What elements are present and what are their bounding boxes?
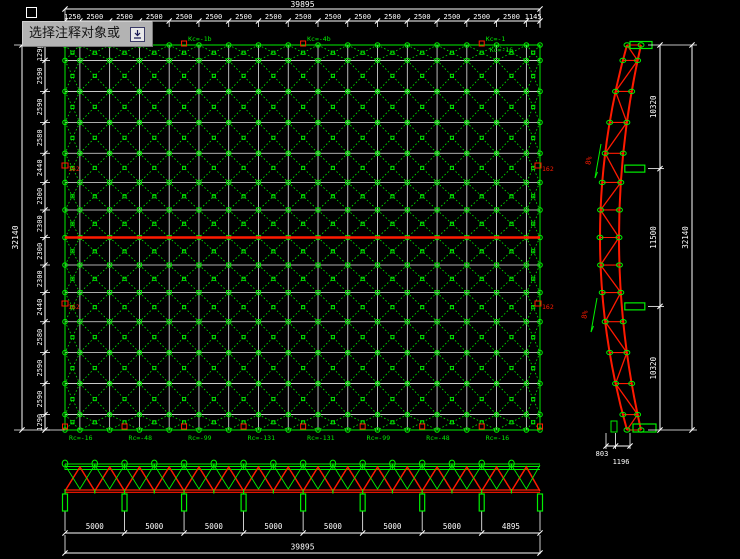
svg-text:2500: 2500: [116, 13, 133, 21]
bottom-dimension-chain: 5000500050005000500050005000489539895: [62, 522, 542, 556]
plan-view-space-frame: Rc=-16Rc=-48Rc=-99Rc=-131Rc=-131Rc=-99Rc…: [62, 35, 554, 442]
side-elevation-dimensions: 103201150010320321408031196: [596, 42, 697, 466]
svg-text:2500: 2500: [176, 13, 193, 21]
svg-text:Rc=-99: Rc=-99: [367, 434, 391, 442]
left-dimension-chain: 3214012902590259025802440230023002300230…: [11, 42, 65, 432]
svg-text:2300: 2300: [36, 243, 44, 260]
svg-text:162: 162: [68, 303, 80, 311]
svg-text:2590: 2590: [36, 98, 44, 115]
svg-text:162: 162: [542, 303, 554, 311]
svg-text:2300: 2300: [36, 188, 44, 205]
svg-text:2440: 2440: [36, 299, 44, 316]
svg-text:10320: 10320: [649, 95, 658, 118]
svg-text:Kc=-16: Kc=-16: [490, 46, 514, 54]
svg-text:2500: 2500: [384, 13, 401, 21]
svg-text:Rc=-131: Rc=-131: [307, 434, 334, 442]
pickbox-cursor: [26, 7, 37, 18]
svg-text:2580: 2580: [36, 129, 44, 146]
svg-text:2590: 2590: [36, 67, 44, 84]
svg-text:2500: 2500: [265, 13, 282, 21]
svg-text:32140: 32140: [11, 225, 20, 249]
svg-text:2590: 2590: [36, 391, 44, 408]
svg-text:2580: 2580: [36, 329, 44, 346]
svg-text:5000: 5000: [383, 522, 402, 531]
svg-text:Kc=-1b: Kc=-1b: [188, 35, 212, 43]
svg-text:2500: 2500: [86, 13, 103, 21]
svg-text:803: 803: [596, 450, 609, 458]
svg-text:39895: 39895: [290, 543, 314, 552]
svg-text:5000: 5000: [145, 522, 164, 531]
svg-text:2500: 2500: [414, 13, 431, 21]
svg-text:32140: 32140: [681, 226, 690, 249]
svg-text:Rc=-48: Rc=-48: [426, 434, 450, 442]
svg-text:2500: 2500: [205, 13, 222, 21]
svg-text:4895: 4895: [502, 522, 520, 531]
svg-text:Kc=-4b: Kc=-4b: [307, 35, 331, 43]
svg-text:Rc=-16: Rc=-16: [486, 434, 510, 442]
svg-text:2500: 2500: [295, 13, 312, 21]
svg-text:5000: 5000: [324, 522, 343, 531]
tab-key-icon: [130, 27, 145, 42]
svg-text:2500: 2500: [503, 13, 520, 21]
svg-text:10320: 10320: [649, 356, 658, 379]
svg-text:2500: 2500: [354, 13, 371, 21]
svg-text:1290: 1290: [36, 414, 44, 431]
svg-text:5000: 5000: [443, 522, 462, 531]
dynamic-input-tooltip: 选择注释对象或: [22, 21, 153, 47]
svg-text:5000: 5000: [264, 522, 283, 531]
svg-text:1145: 1145: [525, 13, 542, 21]
svg-text:162: 162: [542, 165, 554, 173]
svg-text:162: 162: [68, 165, 80, 173]
svg-text:5000: 5000: [205, 522, 224, 531]
svg-text:Rc=-16: Rc=-16: [69, 434, 93, 442]
svg-text:Rc=-99: Rc=-99: [188, 434, 212, 442]
tooltip-text: 选择注释对象或: [29, 24, 120, 44]
svg-text:2440: 2440: [36, 159, 44, 176]
svg-text:8%: 8%: [580, 309, 589, 319]
svg-text:Rc=-48: Rc=-48: [129, 434, 153, 442]
svg-text:2300: 2300: [36, 270, 44, 287]
svg-text:2500: 2500: [324, 13, 341, 21]
svg-text:2500: 2500: [473, 13, 490, 21]
svg-text:Rc=-131: Rc=-131: [248, 434, 275, 442]
bottom-elevation-view: [62, 460, 542, 531]
svg-text:39895: 39895: [290, 0, 314, 9]
svg-text:2500: 2500: [235, 13, 252, 21]
svg-text:2590: 2590: [36, 360, 44, 377]
svg-text:2500: 2500: [146, 13, 163, 21]
svg-text:1250: 1250: [64, 13, 81, 21]
svg-text:1196: 1196: [613, 458, 630, 466]
svg-text:Kc=-1: Kc=-1: [486, 35, 506, 43]
svg-text:5000: 5000: [86, 522, 105, 531]
svg-text:8%: 8%: [584, 155, 593, 165]
svg-text:2300: 2300: [36, 215, 44, 232]
svg-text:2500: 2500: [444, 13, 461, 21]
cad-drawing-canvas[interactable]: 3989512502500250025002500250025002500250…: [0, 0, 740, 559]
side-elevation-view: 8%8%: [580, 42, 656, 433]
svg-text:11500: 11500: [649, 226, 658, 249]
